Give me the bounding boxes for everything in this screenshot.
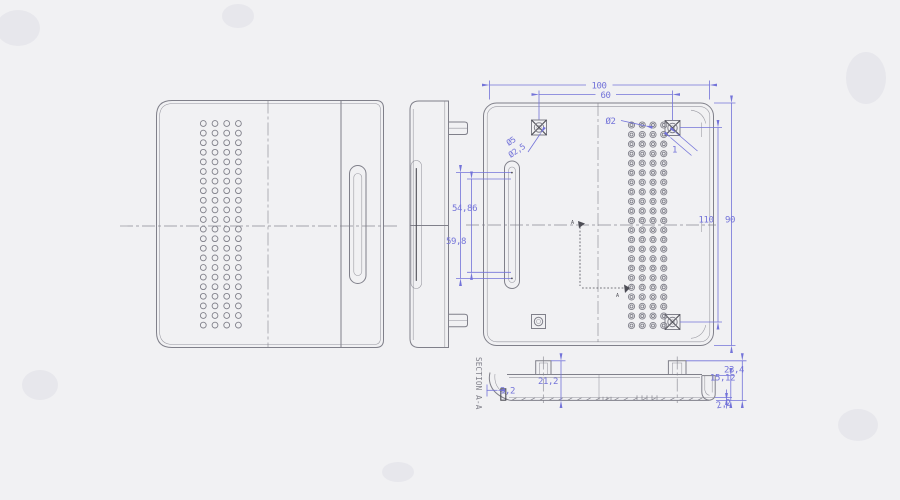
- boss-top-left: [532, 120, 547, 135]
- section-arrow-top: [578, 221, 585, 228]
- side-view: [410, 101, 468, 348]
- back-corner-arc-tr: [691, 110, 706, 123]
- dim-100-text: 100: [591, 81, 606, 91]
- section-cut-line: A A: [571, 220, 630, 299]
- dim-5486-text: 54,86: [452, 204, 477, 214]
- back-corner-arc-br: [691, 325, 706, 338]
- boss-bottom-right: [665, 315, 680, 330]
- dim-sec-base-thickness: 2,2: [715, 390, 732, 412]
- section-view: SECTION A-A: [474, 357, 715, 410]
- dim-1512-text: 15,12: [710, 374, 735, 384]
- section-marker-top: A: [571, 220, 574, 226]
- section-boss-2: [668, 357, 686, 404]
- section-notches-small: [603, 397, 611, 400]
- dim-212-text: 21,2: [538, 377, 558, 387]
- dim-90-text: 90: [725, 216, 735, 226]
- front-hole-grid: [200, 121, 241, 328]
- front-inner-edge: [160, 104, 381, 345]
- chamfer-text: 1: [672, 146, 677, 156]
- boss-bottom-left: [532, 315, 546, 329]
- back-outline: [484, 103, 714, 346]
- section-title: SECTION A-A: [474, 357, 483, 410]
- callout-boss-diameters: Ø5 Ø2,5: [500, 132, 540, 160]
- front-view: [120, 101, 398, 348]
- watermark-blobs: [0, 4, 886, 482]
- dim-sec-boss-height: 21,2: [538, 361, 566, 401]
- dim-22-text: 2,2: [715, 398, 732, 411]
- dim-60-text: 60: [600, 91, 610, 101]
- dim-slot-outer: 59,8: [446, 173, 511, 279]
- slot-end-point-bottom: [511, 278, 513, 280]
- callout-chamfer: 1: [671, 133, 698, 156]
- dim-32-text: 3,2: [500, 386, 515, 396]
- cad-drawing-canvas: A A SECTION A-A: [0, 0, 900, 500]
- dim-sec-wall-height: 15,12: [710, 374, 735, 401]
- slot-end-point-top: [511, 172, 513, 174]
- dia-hole-text: Ø2: [606, 116, 616, 127]
- dim-boss-spacing-h: 60: [539, 91, 673, 121]
- boss-top-right: [665, 121, 680, 136]
- dim-110-text: 110: [699, 216, 714, 226]
- dim-598-text: 59,8: [446, 237, 466, 247]
- front-slot-inner: [354, 174, 362, 276]
- front-slot-outer: [350, 166, 367, 284]
- section-marker-bottom: A: [616, 293, 619, 299]
